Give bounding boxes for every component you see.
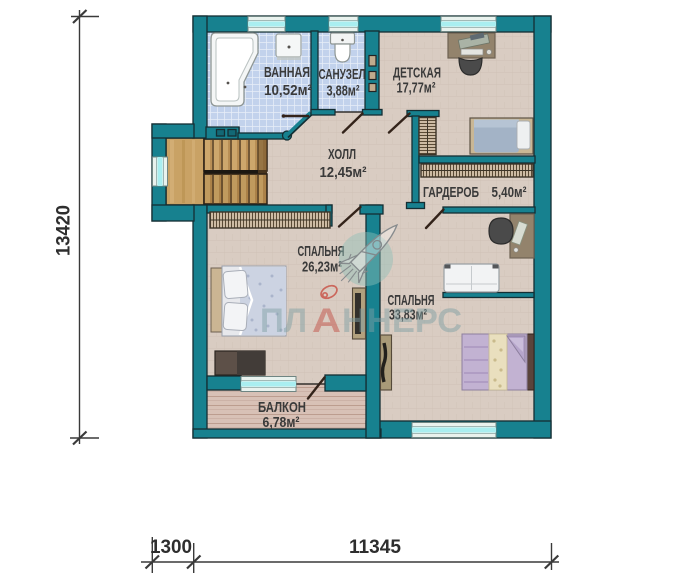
svg-text:26,23м²: 26,23м²	[302, 259, 342, 276]
svg-text:ВАННАЯ: ВАННАЯ	[264, 64, 310, 81]
svg-text:СПАЛЬНЯ: СПАЛЬНЯ	[298, 243, 345, 260]
svg-text:11345: 11345	[349, 537, 401, 558]
svg-text:ХОЛЛ: ХОЛЛ	[328, 146, 356, 163]
svg-text:ННЕРС: ННЕРС	[342, 302, 462, 340]
svg-text:3,88м²: 3,88м²	[327, 83, 360, 100]
svg-text:САНУЗЕЛ: САНУЗЕЛ	[319, 66, 366, 83]
svg-text:13420: 13420	[54, 205, 75, 256]
svg-text:12,45м²: 12,45м²	[320, 164, 367, 181]
svg-text:6,78м²: 6,78м²	[263, 414, 300, 431]
svg-text:17,77м²: 17,77м²	[397, 80, 436, 97]
svg-text:ГАРДЕРОБ: ГАРДЕРОБ	[423, 184, 479, 201]
svg-text:ПЛ: ПЛ	[260, 302, 307, 340]
svg-text:А: А	[312, 302, 341, 340]
svg-text:5,40м²: 5,40м²	[492, 184, 527, 201]
svg-text:10,52м²: 10,52м²	[264, 82, 312, 99]
svg-text:1300: 1300	[150, 537, 192, 558]
